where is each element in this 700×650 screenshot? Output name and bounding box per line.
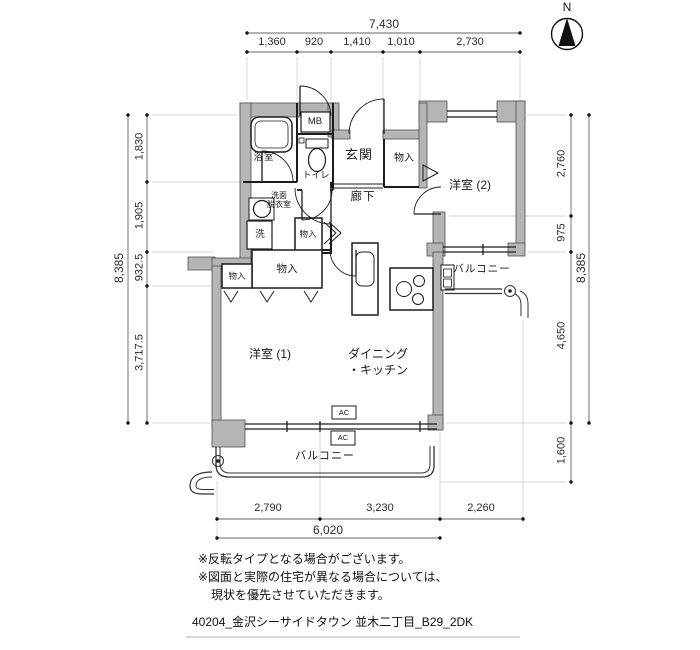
dim-left-seg-2: 1,905 — [135, 188, 146, 244]
plan-title: 40204_金沢シーサイドタウン 並木二丁目_B29_2DK — [192, 616, 473, 628]
north-label: N — [560, 1, 574, 13]
floorplan-page: 7,430 1,360 920 1,410 1,010 2,730 8,385 … — [0, 0, 700, 650]
north-arrow-icon — [552, 18, 583, 50]
room-label-entrance: 玄関 — [334, 148, 384, 161]
note-line-3: 現状を優先させていただきます。 — [211, 589, 390, 601]
balcony-right — [445, 286, 528, 319]
room-label-toilet: トイレ — [296, 171, 336, 180]
stove — [390, 268, 433, 310]
room-label-western-room-1: 洋室 (1) — [230, 348, 310, 360]
room-label-dk-1: ダイニング — [338, 348, 418, 360]
dim-top-seg-4: 1,010 — [376, 37, 426, 48]
room-label-corridor: 廊下 — [338, 192, 388, 204]
dim-top-seg-5: 2,730 — [445, 37, 495, 48]
dim-bottom-seg-3: 2,260 — [451, 503, 511, 514]
note-line-1: ※反転タイプとなる場合がございます。 — [198, 553, 411, 565]
dim-left-seg-3: 932.5 — [135, 240, 146, 296]
room-label-balcony-right: バルコニー — [437, 264, 527, 275]
dim-left-seg-1: 1,830 — [135, 119, 146, 175]
dim-bottom-overall: 6,020 — [298, 524, 358, 536]
dim-top-overall: 7,430 — [354, 18, 414, 30]
dim-right-seg-4: 1,600 — [557, 423, 568, 479]
dim-top-seg-3: 1,410 — [332, 37, 382, 48]
room-label-dk-2: ・キッチン — [338, 364, 418, 376]
room-label-bathroom: 浴室 — [244, 153, 284, 163]
dim-right-seg-1: 2,760 — [557, 136, 568, 192]
entrance-step — [333, 184, 383, 188]
room-label-meter-box: MB — [300, 117, 330, 127]
bathtub — [251, 117, 292, 152]
room-label-closet-big: 物入 — [267, 264, 307, 275]
room-label-washroom-1: 洗面 — [259, 192, 299, 200]
dim-right-overall: 8,385 — [575, 240, 587, 296]
room-label-laundry: 洗 — [250, 230, 270, 240]
dim-right-seg-2: 975 — [557, 205, 568, 261]
toilet-fixture — [299, 138, 328, 172]
dim-right-seg-3: 4,650 — [557, 308, 568, 364]
dim-left-seg-4: 3,717.5 — [135, 325, 146, 381]
note-line-2: ※図面と実際の住宅が異なる場合については、 — [198, 571, 447, 583]
room-label-washroom-2: 脱衣室 — [259, 201, 299, 209]
dim-bottom-seg-2: 3,230 — [350, 503, 410, 514]
room-label-closet-small: 物入 — [219, 272, 255, 281]
dim-left-overall: 8,385 — [113, 240, 125, 296]
dim-bottom-seg-1: 2,790 — [238, 503, 298, 514]
room-label-closet-entrance: 物入 — [384, 154, 424, 164]
label-ac-2: AC — [331, 434, 355, 442]
room-label-western-room-2: 洋室 (2) — [430, 179, 510, 191]
room-label-balcony-bottom: バルコニー — [275, 451, 375, 462]
label-ac-1: AC — [332, 409, 356, 417]
room-label-closet-mid: 物入 — [290, 230, 326, 239]
